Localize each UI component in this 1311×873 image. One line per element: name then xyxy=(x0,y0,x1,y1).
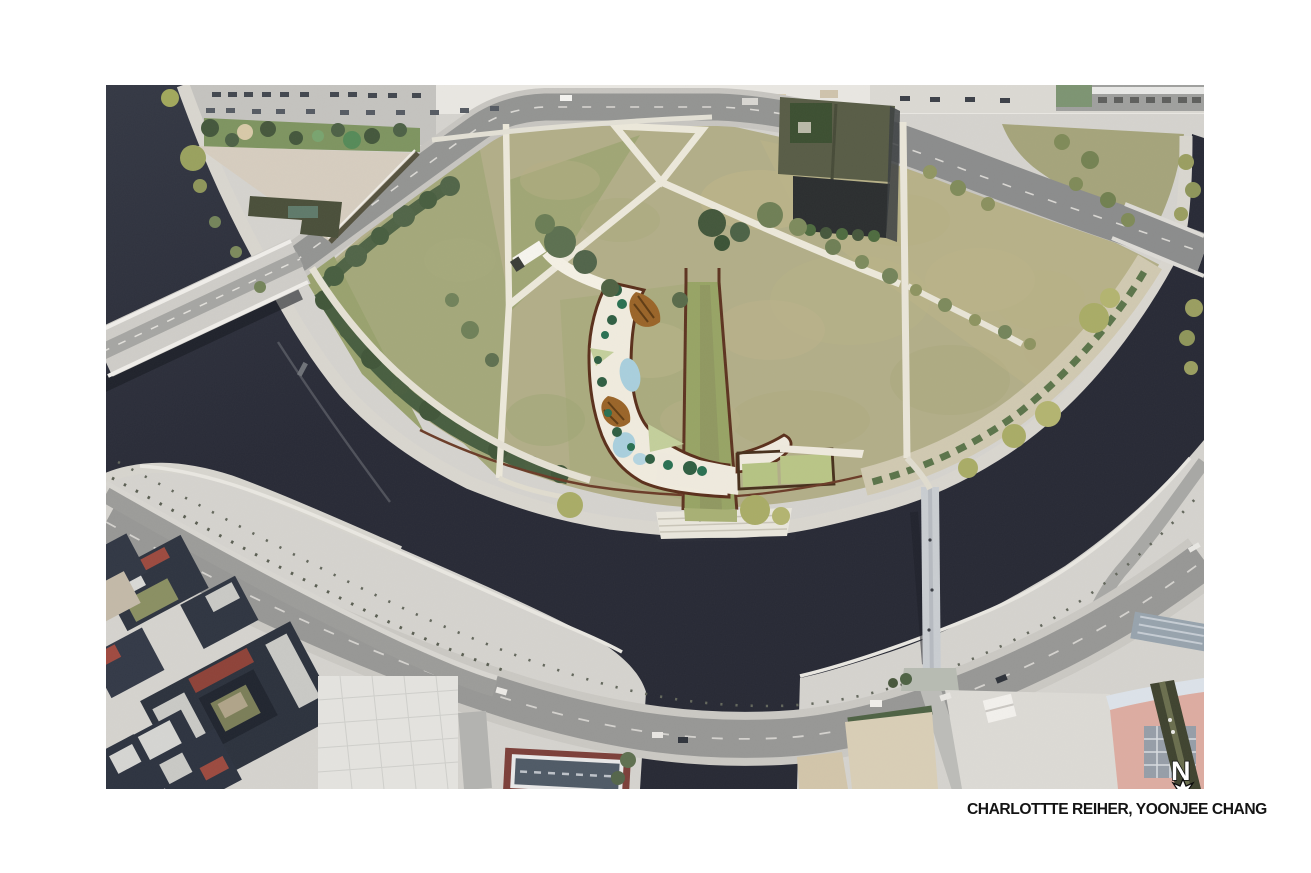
svg-text:N: N xyxy=(1171,756,1191,786)
